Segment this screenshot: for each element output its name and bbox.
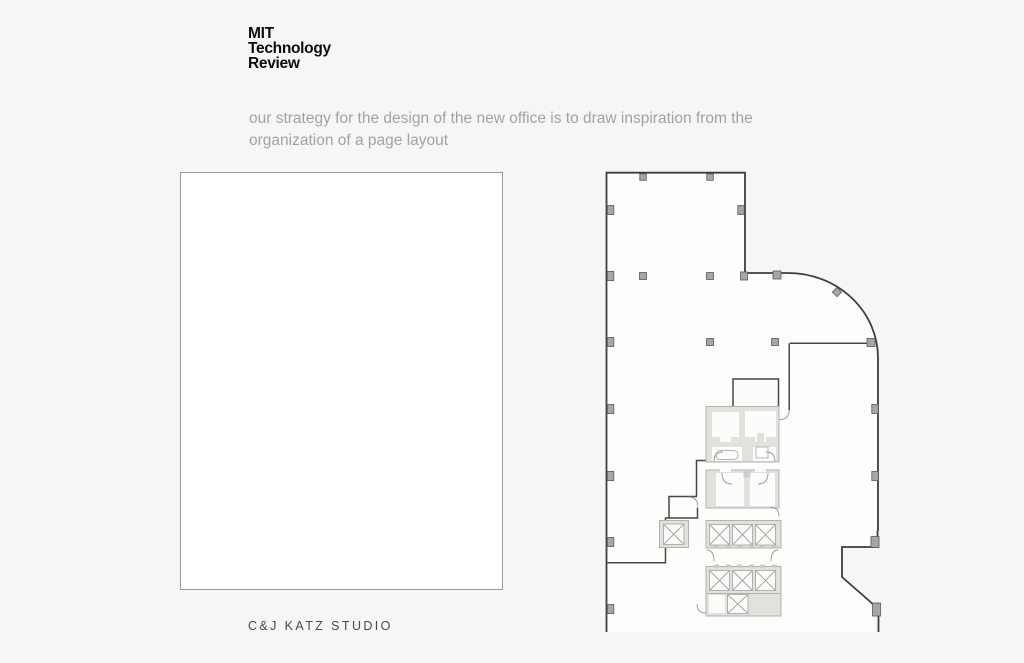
logo-line-2: Technology [248,41,331,56]
strategy-statement: our strategy for the design of the new o… [249,108,841,152]
sink-fixture [716,451,738,460]
logo-line-3: Review [248,56,331,71]
presentation-slide: MIT Technology Review our strategy for t… [0,0,1024,663]
floor-plan [595,160,890,640]
wc-fixture [756,447,768,458]
logo-line-1: MIT [248,26,331,41]
mit-technology-review-logo: MIT Technology Review [248,26,331,71]
page-layout-placeholder [180,172,503,590]
core-top-room [733,379,779,407]
studio-credit: C&J KATZ STUDIO [248,619,393,633]
